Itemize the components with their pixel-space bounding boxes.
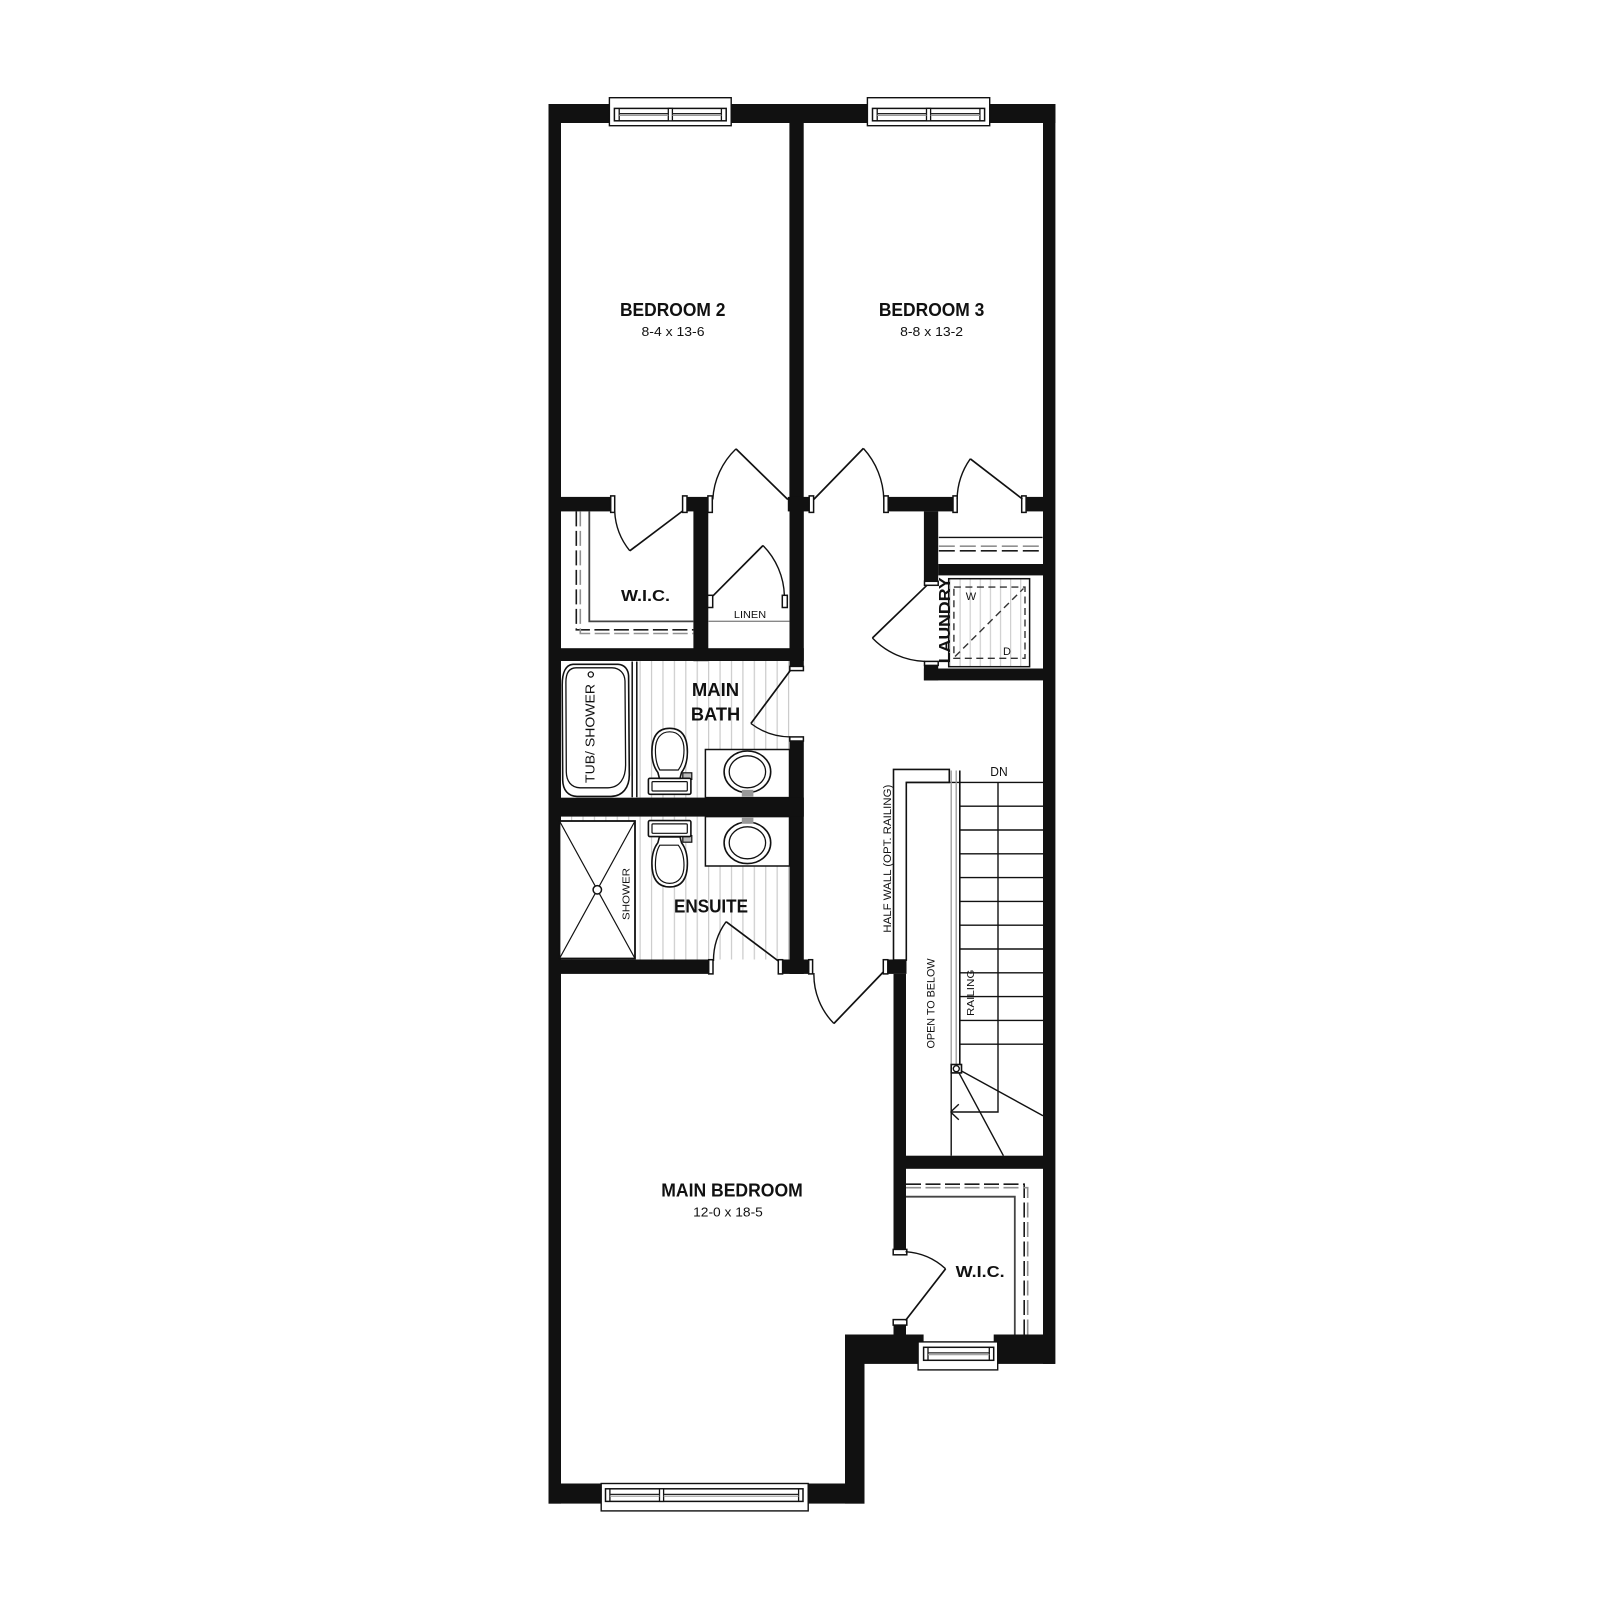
svg-text:W.I.C.: W.I.C. bbox=[956, 1264, 1005, 1281]
svg-text:DN: DN bbox=[990, 765, 1007, 779]
svg-text:BATH: BATH bbox=[691, 704, 740, 724]
svg-text:D: D bbox=[1003, 646, 1011, 658]
svg-text:BEDROOM 3: BEDROOM 3 bbox=[879, 300, 985, 320]
svg-text:BEDROOM 2: BEDROOM 2 bbox=[620, 300, 726, 320]
svg-text:MAIN BEDROOM: MAIN BEDROOM bbox=[661, 1180, 803, 1200]
svg-text:HALF WALL (OPT. RAILING): HALF WALL (OPT. RAILING) bbox=[882, 785, 894, 933]
svg-text:OPEN TO BELOW: OPEN TO BELOW bbox=[925, 958, 937, 1049]
svg-text:12-0 x 18-5: 12-0 x 18-5 bbox=[693, 1205, 763, 1220]
svg-text:8-8 x 13-2: 8-8 x 13-2 bbox=[900, 324, 963, 339]
svg-text:MAIN: MAIN bbox=[692, 680, 739, 700]
svg-text:W: W bbox=[966, 591, 977, 603]
svg-text:ENSUITE: ENSUITE bbox=[674, 897, 748, 917]
svg-text:SHOWER: SHOWER bbox=[621, 868, 633, 920]
svg-text:LAUNDRY: LAUNDRY bbox=[937, 577, 954, 663]
svg-text:W.I.C.: W.I.C. bbox=[621, 588, 670, 605]
svg-text:LINEN: LINEN bbox=[734, 610, 766, 621]
svg-text:RAILING: RAILING bbox=[965, 970, 977, 1017]
svg-text:8-4 x 13-6: 8-4 x 13-6 bbox=[642, 324, 705, 339]
svg-text:TUB/ SHOWER: TUB/ SHOWER bbox=[583, 684, 598, 783]
